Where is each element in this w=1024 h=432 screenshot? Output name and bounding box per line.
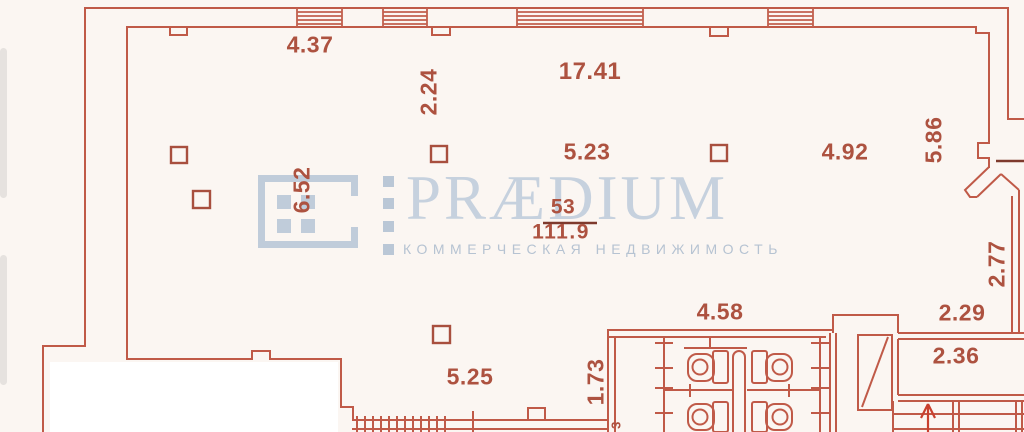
dim-niche-a: 2.29 (939, 302, 986, 325)
dim-top-window: 4.37 (287, 34, 334, 57)
floor-plan-page: PRÆDIUM КОММЕРЧЕСКАЯ НЕДВИЖИМОСТЬ 4.37 1… (0, 0, 1024, 432)
dim-partial: 3 (610, 421, 623, 429)
dim-niche-b: 2.36 (933, 345, 980, 368)
dim-pier-depth: 2.24 (418, 69, 441, 116)
room-number: 53 (551, 197, 575, 218)
dim-span-mid: 6.52 (291, 167, 314, 214)
room-area: 111.9 (532, 222, 590, 243)
column-markers (171, 145, 727, 343)
toilet-icon (688, 351, 792, 432)
dark-wall-segments (543, 161, 1024, 223)
dim-wc-depth: 1.73 (585, 359, 608, 406)
stairs-arrow-icon (921, 404, 935, 432)
dim-wc-width: 4.58 (697, 301, 744, 324)
dim-wall-right: 2.77 (986, 241, 1009, 288)
white-cover-patch (50, 362, 338, 432)
dim-depth-right: 5.86 (923, 117, 946, 164)
window-hatch (297, 8, 813, 27)
dim-span-right: 4.92 (822, 141, 869, 164)
dim-span-left: 5.23 (564, 141, 611, 164)
dim-span-bottom: 5.25 (447, 366, 494, 389)
wc-block-walls (607, 330, 836, 432)
dim-hall-width: 17.41 (559, 60, 622, 84)
door-leaf-icon (858, 335, 892, 410)
